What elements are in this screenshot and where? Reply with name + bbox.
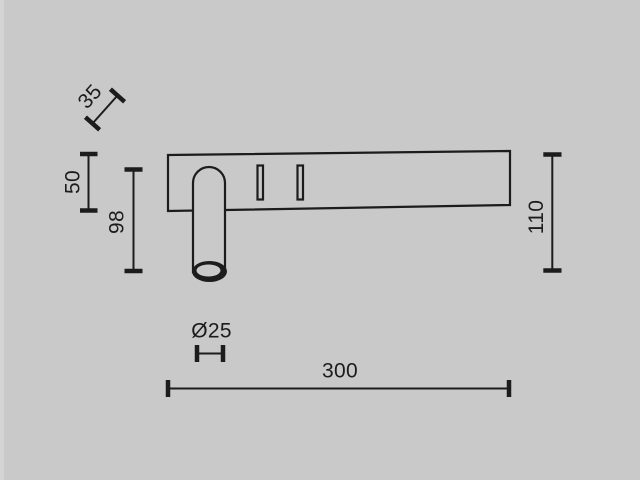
technical-drawing-page: 35 50 98 110 Ø25 bbox=[0, 0, 640, 480]
fixture-spot-tube bbox=[193, 167, 225, 272]
dimension-label-98: 98 bbox=[106, 210, 129, 234]
left-edge-strip bbox=[0, 0, 4, 480]
dimension-label-110: 110 bbox=[525, 200, 548, 234]
dimension-label-300: 300 bbox=[322, 360, 358, 383]
dimension-label-50: 50 bbox=[62, 170, 85, 194]
drawing-background bbox=[0, 0, 640, 480]
tube-aperture-opening bbox=[197, 265, 221, 277]
dimension-drawing-canvas: 35 50 98 110 Ø25 bbox=[0, 0, 640, 480]
dimension-label-25: Ø25 bbox=[191, 320, 232, 343]
